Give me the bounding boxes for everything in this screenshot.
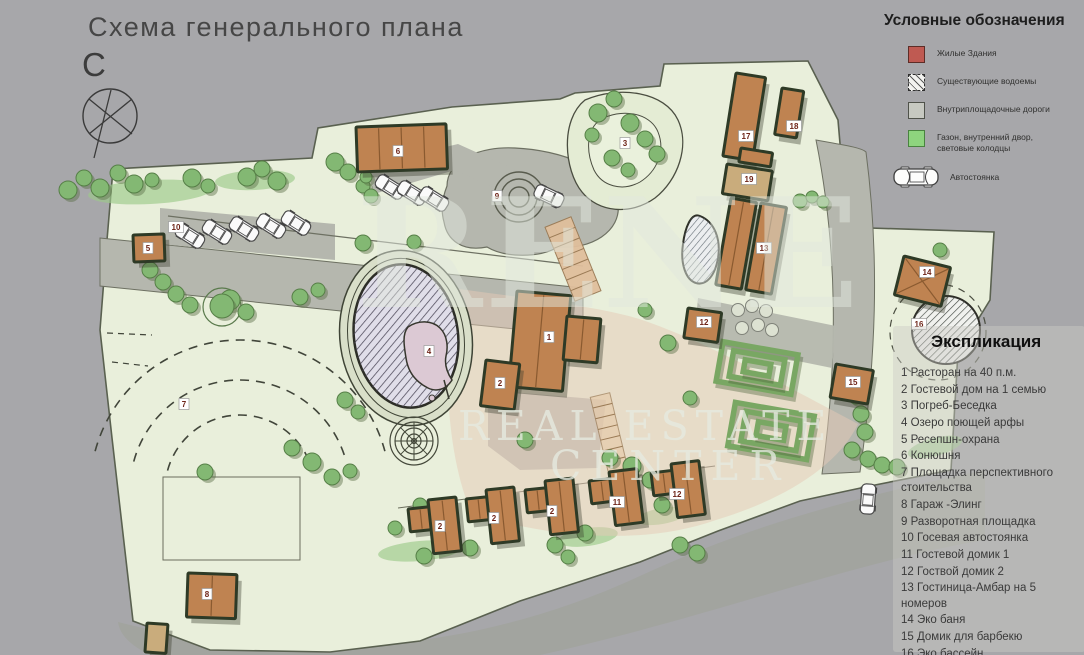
explication-panel: Экспликация 1 Расторан на 40 п.м.2 Госте… [901,332,1081,655]
road-swatch [908,102,925,119]
explication-item: 15 Домик для барбекю [901,630,1081,646]
svg-text:8: 8 [205,590,210,599]
legend-title: Условные обозначения [884,12,1080,30]
svg-text:11: 11 [613,498,622,507]
svg-text:6: 6 [396,147,401,156]
explication-item: 12 Гоствой домик 2 [901,565,1081,581]
svg-text:1: 1 [547,333,552,342]
explication-item: 6 Конюшня [901,449,1081,465]
explication-item: 7 Площадка перспективного стоительства [901,466,1081,497]
svg-text:2: 2 [438,522,443,531]
explication-item: 2 Гостевой дом на 1 семью [901,383,1081,399]
explication-item: 11 Гостевой домик 1 [901,548,1081,564]
general-plan-page: 1234567891022211121213141516171819 RENE … [0,0,1084,655]
legend-item-residential: Жилые Здания [908,46,1080,63]
legend-item-lawn: Газон, внутренний двор, световые колодцы [908,130,1080,155]
explication-title: Экспликация [931,332,1081,352]
explication-list: 1 Расторан на 40 п.м.2 Гостевой дом на 1… [901,366,1081,655]
explication-item: 4 Озеро поющей арфы [901,416,1081,432]
water-swatch [908,74,925,91]
svg-text:7: 7 [182,400,187,409]
explication-item: 8 Гараж -Элинг [901,498,1081,514]
north-letter: С [82,46,106,84]
svg-text:12: 12 [673,490,682,499]
explication-item: 10 Госевая автостоянка [901,531,1081,547]
residential-swatch [908,46,925,63]
legend-item-roads: Внутриплощадочные дороги [908,102,1080,119]
svg-text:19: 19 [745,175,754,184]
svg-text:17: 17 [742,132,751,141]
explication-item: 9 Разворотная площадка [901,515,1081,531]
svg-text:5: 5 [146,244,151,253]
svg-text:12: 12 [700,318,709,327]
page-title: Схема генерального плана [88,12,464,43]
svg-text:2: 2 [492,514,497,523]
svg-text:13: 13 [760,244,769,253]
svg-text:9: 9 [495,192,500,201]
explication-item: 16 Эко бассейн [901,647,1081,655]
explication-item: 1 Расторан на 40 п.м. [901,366,1081,382]
svg-text:15: 15 [849,378,858,387]
legend-panel: Условные обозначения Жилые Здания Сущест… [884,12,1080,199]
legend-item-parking: Автостоянка [892,166,1080,188]
explication-item: 3 Погреб-Беседка [901,399,1081,415]
explication-item: 14 Эко баня [901,613,1081,629]
parking-car-icon [892,166,940,188]
lawn-swatch [908,130,925,147]
svg-text:4: 4 [427,347,432,356]
svg-text:3: 3 [623,139,628,148]
svg-text:14: 14 [923,268,932,277]
svg-text:2: 2 [550,507,555,516]
svg-text:18: 18 [790,122,799,131]
explication-item: 5 Ресепшн-охрана [901,433,1081,449]
svg-text:2: 2 [498,379,503,388]
legend-item-water: Существующие водоемы [908,74,1080,91]
svg-text:10: 10 [172,223,181,232]
explication-item: 13 Гостиница-Амбар на 5 номеров [901,581,1081,612]
